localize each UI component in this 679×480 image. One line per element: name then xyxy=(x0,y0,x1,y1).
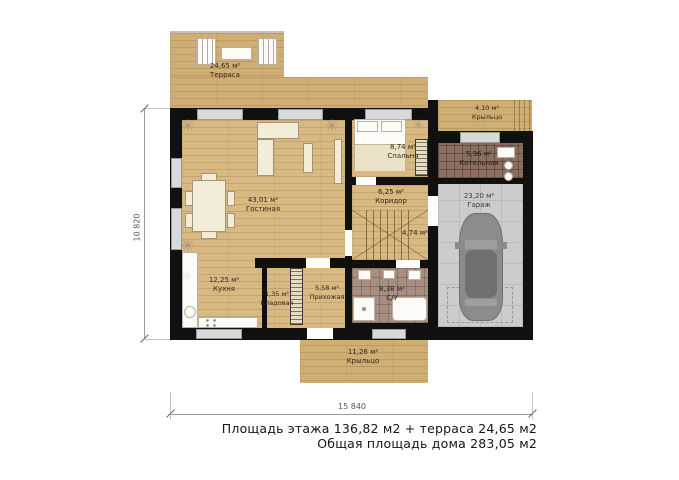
window-left-1 xyxy=(171,158,182,188)
dim-ext xyxy=(145,339,170,340)
chair xyxy=(201,231,217,239)
plant-icon: ✳ xyxy=(325,118,338,134)
porch-top-steps xyxy=(514,100,532,131)
area-summary: Площадь этажа 136,82 м2 + терраса 24,65 … xyxy=(137,422,537,451)
car-mirror xyxy=(502,242,507,249)
summary-line-1: Площадь этажа 136,82 м2 + терраса 24,65 … xyxy=(137,422,537,437)
dim-line-height xyxy=(144,108,145,339)
dim-height-label: 10 820 xyxy=(133,200,142,256)
shower-drain xyxy=(362,307,366,311)
sink xyxy=(383,270,395,279)
porch-bottom-label: 11,26 м² Крыльцо xyxy=(337,348,389,367)
toilet xyxy=(408,270,421,280)
chair xyxy=(201,173,217,181)
porch-top-label: 4,10 м² Крыльцо xyxy=(458,104,516,122)
room-terrace-strip xyxy=(170,77,428,108)
door-entry xyxy=(307,328,333,339)
console-table xyxy=(303,143,313,173)
summary-line-2: Общая площадь дома 283,05 м2 xyxy=(137,437,537,452)
boiler-label: 5,96 м² Котельная xyxy=(452,150,506,169)
terrace-label: 24,65 м² Терраса xyxy=(190,62,260,81)
sofa-unit xyxy=(257,139,274,176)
pillow xyxy=(357,121,378,132)
car-mirror xyxy=(455,242,460,249)
terrace-chair xyxy=(196,38,216,65)
chair xyxy=(227,213,235,228)
storage-label: 1,35 м² Кладовая xyxy=(251,290,303,308)
sofa-unit xyxy=(257,122,299,139)
dim-ext xyxy=(532,392,533,420)
bedroom-label: 8,74 м² Спальня xyxy=(377,143,429,162)
wall-stub xyxy=(428,100,438,143)
dining-table xyxy=(192,180,226,232)
chair xyxy=(185,191,193,206)
car-roof xyxy=(465,250,497,298)
door-living-stairs xyxy=(345,230,352,256)
dim-ext xyxy=(145,108,170,109)
dim-ext xyxy=(170,392,171,420)
door-bathroom xyxy=(396,260,420,268)
living-label: 43,01 м² Гостиная xyxy=(228,196,298,215)
stairs-label: 4,74 м² xyxy=(390,229,440,238)
door-garage xyxy=(428,196,438,226)
wall-kitchen-hall xyxy=(255,258,345,268)
dim-line-width xyxy=(170,414,533,415)
kitchen-label: 12,25 м² Кухня xyxy=(189,276,259,295)
kitchen-sink xyxy=(184,306,196,318)
terrace-table xyxy=(221,47,252,60)
door-bedroom xyxy=(356,177,376,185)
garage-label: 23,20 м² Гараж xyxy=(452,192,506,211)
stove-burners xyxy=(204,318,220,327)
window-living-2 xyxy=(278,109,323,120)
pillow xyxy=(381,121,402,132)
tv-unit xyxy=(334,139,342,184)
window-kitchen xyxy=(196,329,242,339)
plant-icon: ✳ xyxy=(181,118,194,134)
boiler-tank xyxy=(504,172,513,181)
window-living-1 xyxy=(197,109,243,120)
door-hallway xyxy=(306,258,330,268)
dim-width-label: 15 840 xyxy=(320,402,384,411)
terrace-chair xyxy=(257,38,277,65)
door-boiler-porch xyxy=(460,132,500,143)
washing-machine xyxy=(358,270,371,280)
car-rear-window xyxy=(465,299,497,306)
hallway-label: 5,58 м² Прихожая xyxy=(301,284,353,302)
car-windshield xyxy=(465,240,497,249)
window-bath-porch xyxy=(372,329,406,339)
corridor-label: 6,25 м² Коридор xyxy=(365,188,417,207)
bathroom-label: 8,38 м² С/У xyxy=(366,285,418,304)
chair xyxy=(185,213,193,228)
plant-icon: ✳ xyxy=(413,118,424,134)
floor-plan-canvas: 24,65 м² Терраса 4,10 м² Крыльцо 11,26 м… xyxy=(0,0,679,480)
